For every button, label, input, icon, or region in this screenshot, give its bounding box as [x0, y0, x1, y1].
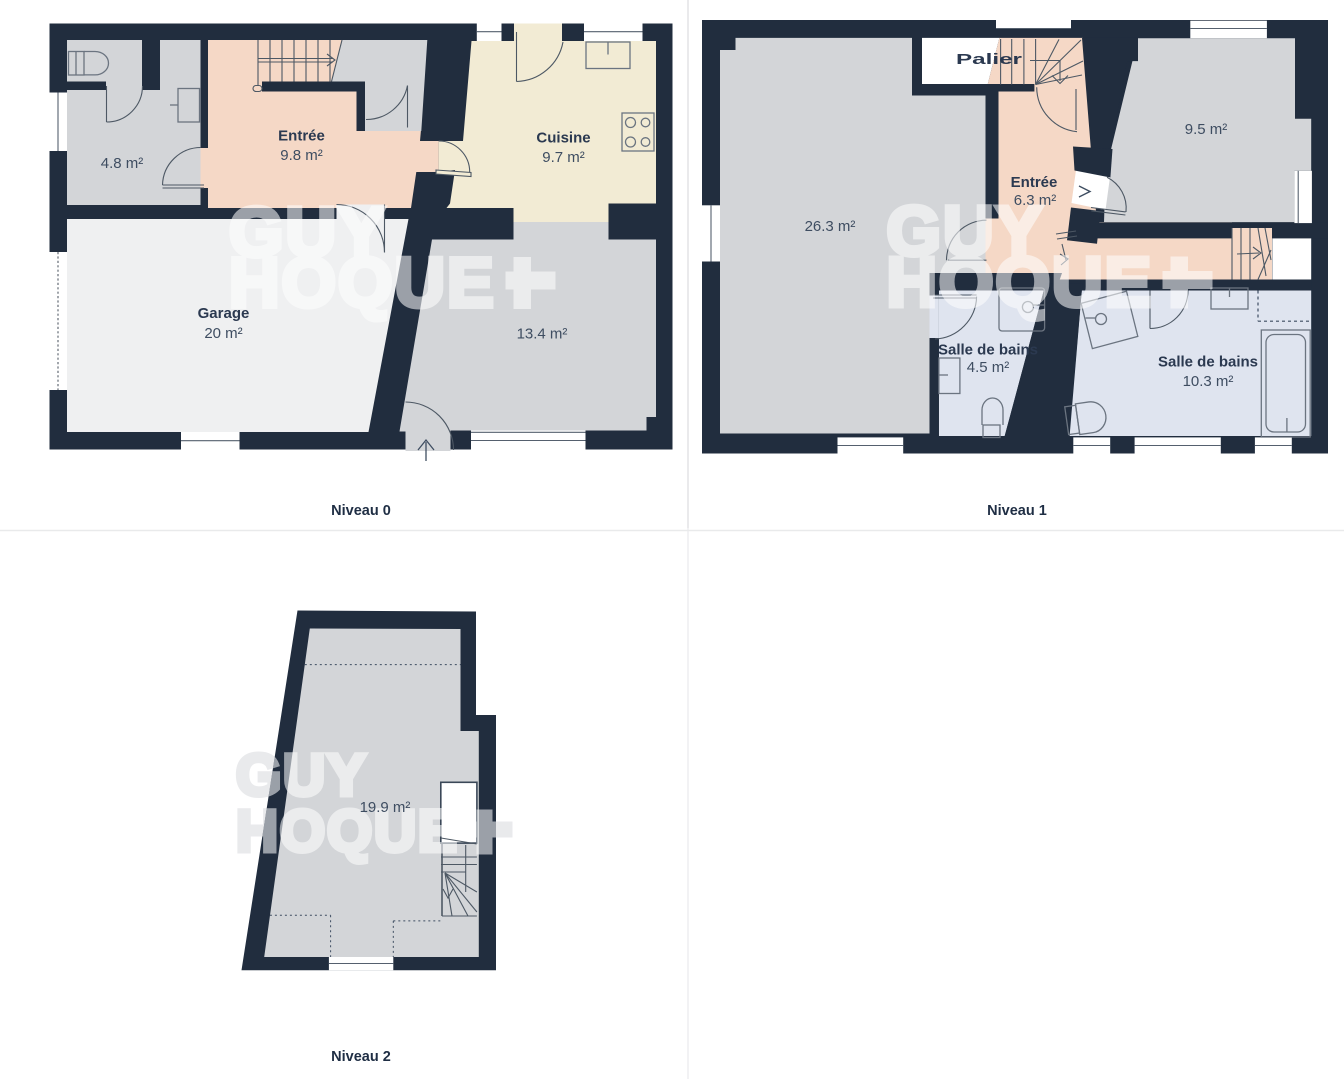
svg-text:Salle de bains: Salle de bains — [1158, 354, 1258, 371]
svg-text:Salle de bains: Salle de bains — [938, 342, 1038, 359]
svg-text:Niveau 2: Niveau 2 — [331, 1049, 391, 1065]
svg-text:HOQUE: HOQUE — [236, 799, 459, 864]
svg-text:Niveau 0: Niveau 0 — [331, 503, 391, 519]
svg-text:Palier: Palier — [956, 51, 1022, 68]
svg-text:Cuisine: Cuisine — [536, 130, 590, 147]
svg-text:9.5 m²: 9.5 m² — [1185, 121, 1228, 138]
svg-text:4.8 m²: 4.8 m² — [101, 155, 144, 172]
svg-text:26.3 m²: 26.3 m² — [805, 218, 856, 235]
svg-text:Niveau 1: Niveau 1 — [987, 503, 1047, 519]
svg-text:20 m²: 20 m² — [204, 325, 242, 342]
svg-text:Entrée: Entrée — [1011, 174, 1058, 191]
svg-text:10.3 m²: 10.3 m² — [1183, 373, 1234, 390]
svg-text:4.5 m²: 4.5 m² — [967, 359, 1010, 376]
svg-text:19.9 m²: 19.9 m² — [360, 799, 411, 816]
svg-text:9.7 m²: 9.7 m² — [542, 149, 585, 166]
svg-text:HOQUE: HOQUE — [229, 244, 496, 322]
svg-text:9.8 m²: 9.8 m² — [280, 147, 323, 164]
svg-text:Entrée: Entrée — [278, 128, 325, 145]
svg-text:HOQUE: HOQUE — [887, 243, 1154, 321]
svg-text:13.4 m²: 13.4 m² — [517, 326, 568, 343]
